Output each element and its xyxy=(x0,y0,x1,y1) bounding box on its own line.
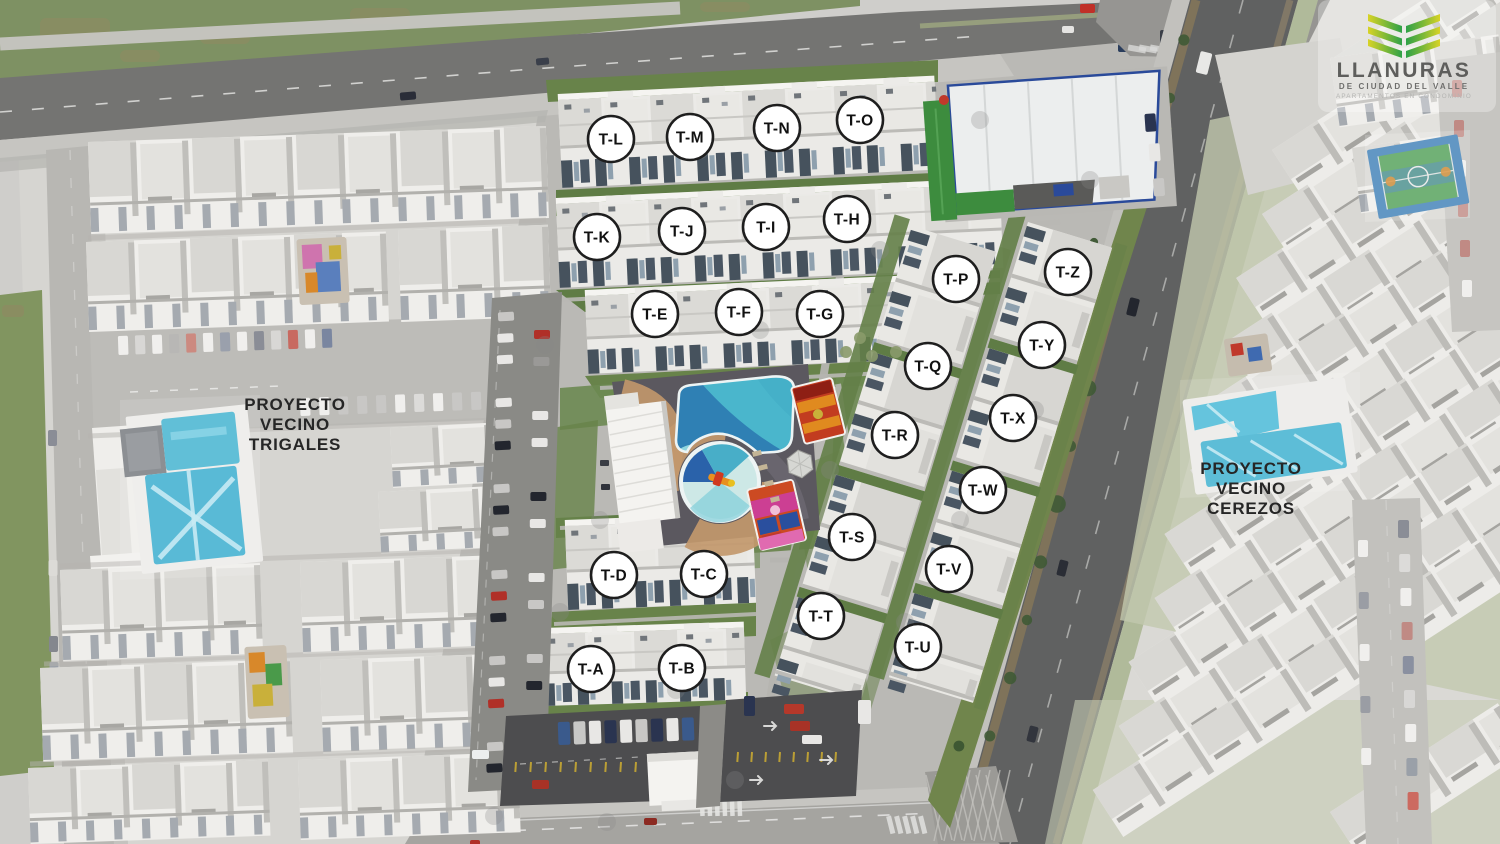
svg-text:T-B: T-B xyxy=(669,661,695,678)
svg-text:T-O: T-O xyxy=(846,113,873,130)
svg-text:T-G: T-G xyxy=(806,307,833,324)
svg-text:T-T: T-T xyxy=(809,609,834,626)
svg-text:T-M: T-M xyxy=(676,130,704,147)
svg-text:T-V: T-V xyxy=(936,562,962,579)
svg-text:T-R: T-R xyxy=(882,428,908,445)
svg-text:T-W: T-W xyxy=(968,483,998,500)
svg-text:T-Z: T-Z xyxy=(1056,265,1081,282)
svg-text:T-D: T-D xyxy=(601,568,627,585)
svg-text:PROYECTO: PROYECTO xyxy=(1200,459,1302,478)
svg-text:TRIGALES: TRIGALES xyxy=(249,435,341,454)
svg-text:VECINO: VECINO xyxy=(1216,479,1286,498)
svg-text:VECINO: VECINO xyxy=(260,415,330,434)
svg-text:T-C: T-C xyxy=(691,567,717,584)
svg-text:T-X: T-X xyxy=(1000,411,1026,428)
svg-text:T-H: T-H xyxy=(834,212,860,229)
svg-text:T-L: T-L xyxy=(599,132,624,149)
svg-text:APARTAMENTOS EN CONDOMINIO: APARTAMENTOS EN CONDOMINIO xyxy=(1336,93,1472,100)
svg-text:T-J: T-J xyxy=(670,224,694,241)
svg-text:PROYECTO: PROYECTO xyxy=(244,395,346,414)
svg-text:T-S: T-S xyxy=(839,530,865,547)
svg-text:LLANURAS: LLANURAS xyxy=(1337,59,1472,82)
svg-text:T-N: T-N xyxy=(764,121,790,138)
svg-text:CEREZOS: CEREZOS xyxy=(1207,499,1295,518)
svg-text:T-Y: T-Y xyxy=(1029,338,1055,355)
svg-text:T-F: T-F xyxy=(727,305,752,322)
svg-text:T-Q: T-Q xyxy=(914,359,941,376)
svg-text:T-E: T-E xyxy=(642,307,668,324)
svg-text:DE CIUDAD DEL VALLE: DE CIUDAD DEL VALLE xyxy=(1339,82,1469,91)
svg-text:T-K: T-K xyxy=(584,230,611,247)
svg-text:T-I: T-I xyxy=(756,220,776,237)
svg-text:T-A: T-A xyxy=(578,662,604,679)
svg-text:T-P: T-P xyxy=(943,272,969,289)
svg-text:T-U: T-U xyxy=(905,640,931,657)
